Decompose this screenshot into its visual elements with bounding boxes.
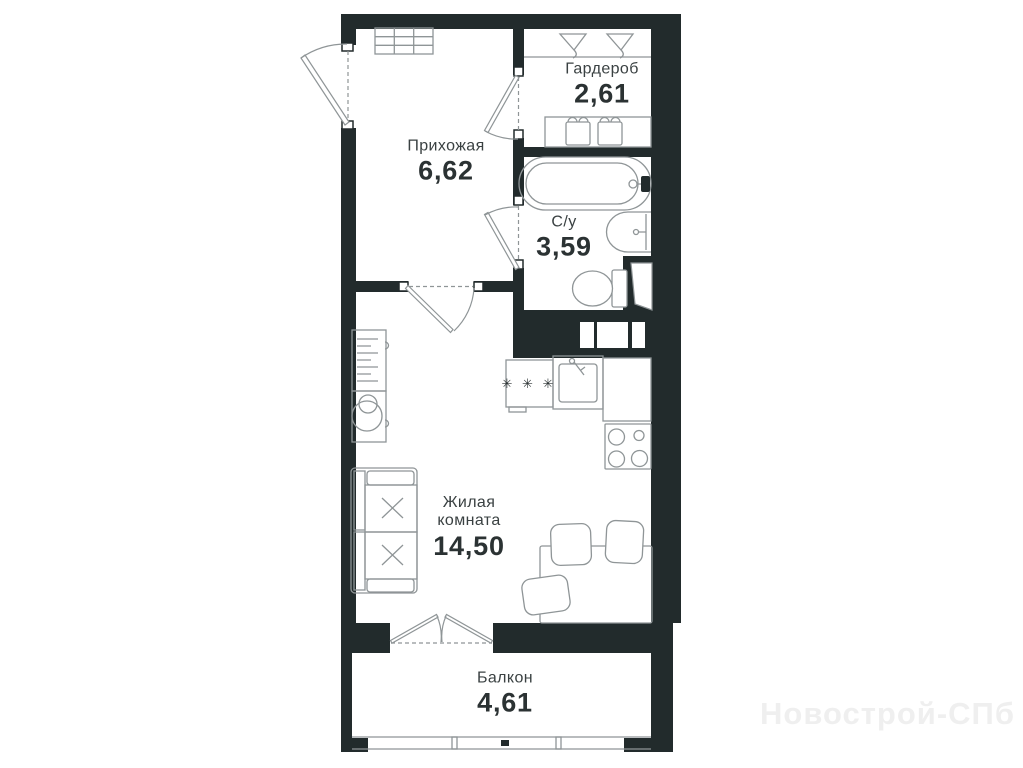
wall-living-bottom-left [341, 623, 390, 653]
watermark: Новострой-СПб [760, 696, 1015, 732]
toilet-icon [573, 270, 628, 307]
fridge-icon [352, 330, 389, 391]
bathroom-door-icon [485, 206, 520, 270]
bathtub-icon [519, 157, 651, 210]
wall-hallway-partition-left [341, 281, 408, 292]
wall-balcony-bottom-left [341, 738, 368, 752]
balcony-window-icon [352, 737, 651, 749]
wall-living-bottom-right [493, 623, 658, 653]
kitchen-sink-icon [553, 356, 603, 409]
entry-door-icon [301, 44, 349, 125]
hanger-icon [524, 34, 651, 58]
washing-machine-icon [352, 391, 389, 442]
wall-balcony-bottom-right [624, 738, 673, 752]
sink-icon [607, 212, 652, 252]
stove-icon [605, 424, 651, 469]
hob-marker: ✳ ✳ ✳ [502, 376, 557, 392]
balcony-door-icon [391, 615, 493, 644]
wall-wardrobe-bath-divider [513, 147, 653, 157]
wardrobe-shelf-icon [545, 117, 651, 147]
floor-plan: Прихожая 6,62 Гардероб 2,61 С/у 3,59 Жил… [0, 0, 1023, 768]
shoe-cabinet-icon [375, 28, 433, 54]
wall-top-left-corner [341, 14, 356, 45]
doors [301, 44, 519, 643]
wall-top [341, 14, 681, 29]
wall-balcony-left [341, 653, 352, 752]
living-room-door-icon [406, 286, 475, 333]
sofa-icon [351, 468, 417, 593]
chair-icon [521, 520, 644, 616]
door-jambs [342, 43, 523, 291]
